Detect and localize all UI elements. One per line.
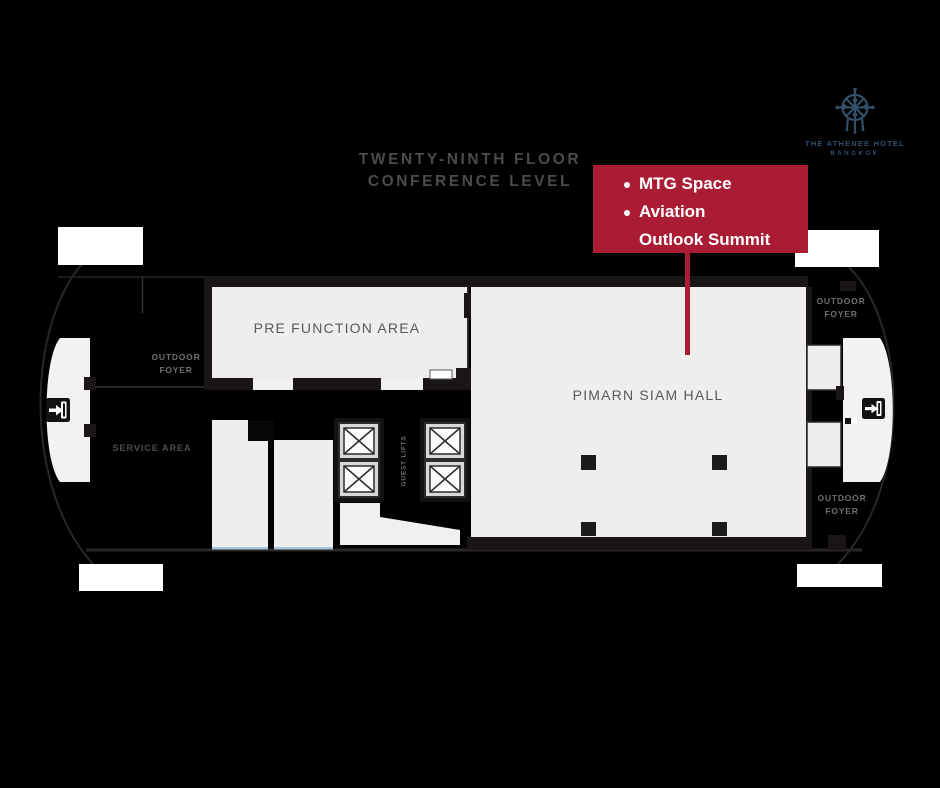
outdoor-foyer-line: FOYER	[151, 364, 200, 377]
lift-cell	[425, 423, 465, 459]
pimarn-siam-hall	[467, 276, 856, 550]
lift-cell	[425, 461, 465, 497]
outdoor-foyer-line: OUTDOOR	[817, 492, 866, 505]
exit-icon	[862, 398, 885, 419]
event-item: MTG Space	[593, 170, 808, 198]
lift-cell	[339, 461, 379, 497]
hotel-name: THE ATHENEE HOTEL	[800, 139, 910, 148]
outdoor-foyer-line: OUTDOOR	[816, 295, 865, 308]
hotel-city: BANGKOK	[800, 151, 910, 157]
outdoor-foyer-bottom-right-label: OUTDOOR FOYER	[817, 492, 866, 518]
floor-plan-page: TWENTY-NINTH FLOOR CONFERENCE LEVEL	[0, 0, 940, 788]
outdoor-foyer-line: FOYER	[816, 308, 865, 321]
lift-cell	[339, 423, 379, 459]
pre-function-area-label: PRE FUNCTION AREA	[254, 320, 421, 336]
hotel-crest-icon	[831, 86, 879, 136]
pimarn-siam-hall-label: PIMARN SIAM HALL	[573, 387, 724, 403]
event-item: Aviation	[593, 198, 808, 226]
event-item-continued: Outlook Summit	[593, 226, 808, 254]
event-callout-box: MTG Space Aviation Outlook Summit	[593, 165, 808, 253]
guest-lifts-label: GUEST LIFTS	[401, 435, 408, 486]
service-area-label: SERVICE AREA	[112, 443, 191, 453]
hotel-logo: THE ATHENEE HOTEL BANGKOK	[800, 86, 910, 157]
outdoor-foyer-top-right-label: OUTDOOR FOYER	[816, 295, 865, 321]
outdoor-foyer-line: FOYER	[817, 505, 866, 518]
outdoor-foyer-line: OUTDOOR	[151, 351, 200, 364]
outdoor-foyer-left-label: OUTDOOR FOYER	[151, 351, 200, 377]
floor-plan-svg	[0, 0, 940, 788]
callout-leader-line	[685, 253, 690, 355]
exit-icon	[46, 398, 70, 422]
